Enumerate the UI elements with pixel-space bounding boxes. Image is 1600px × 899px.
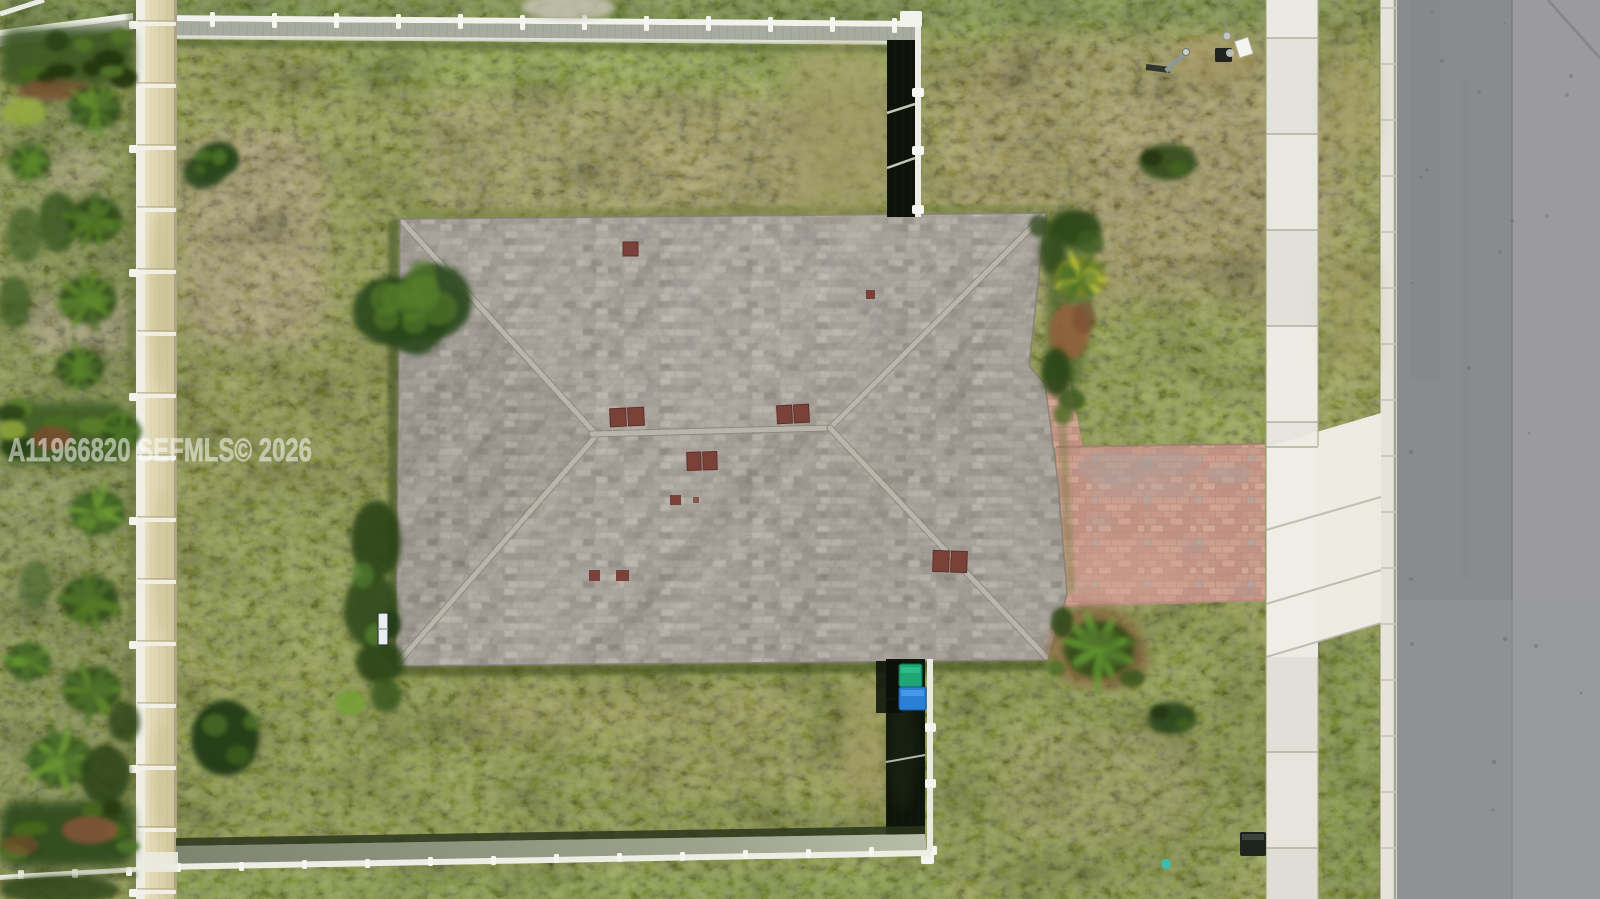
svg-text:A11966820 SEFMLS© 2026: A11966820 SEFMLS© 2026 [8, 432, 312, 468]
